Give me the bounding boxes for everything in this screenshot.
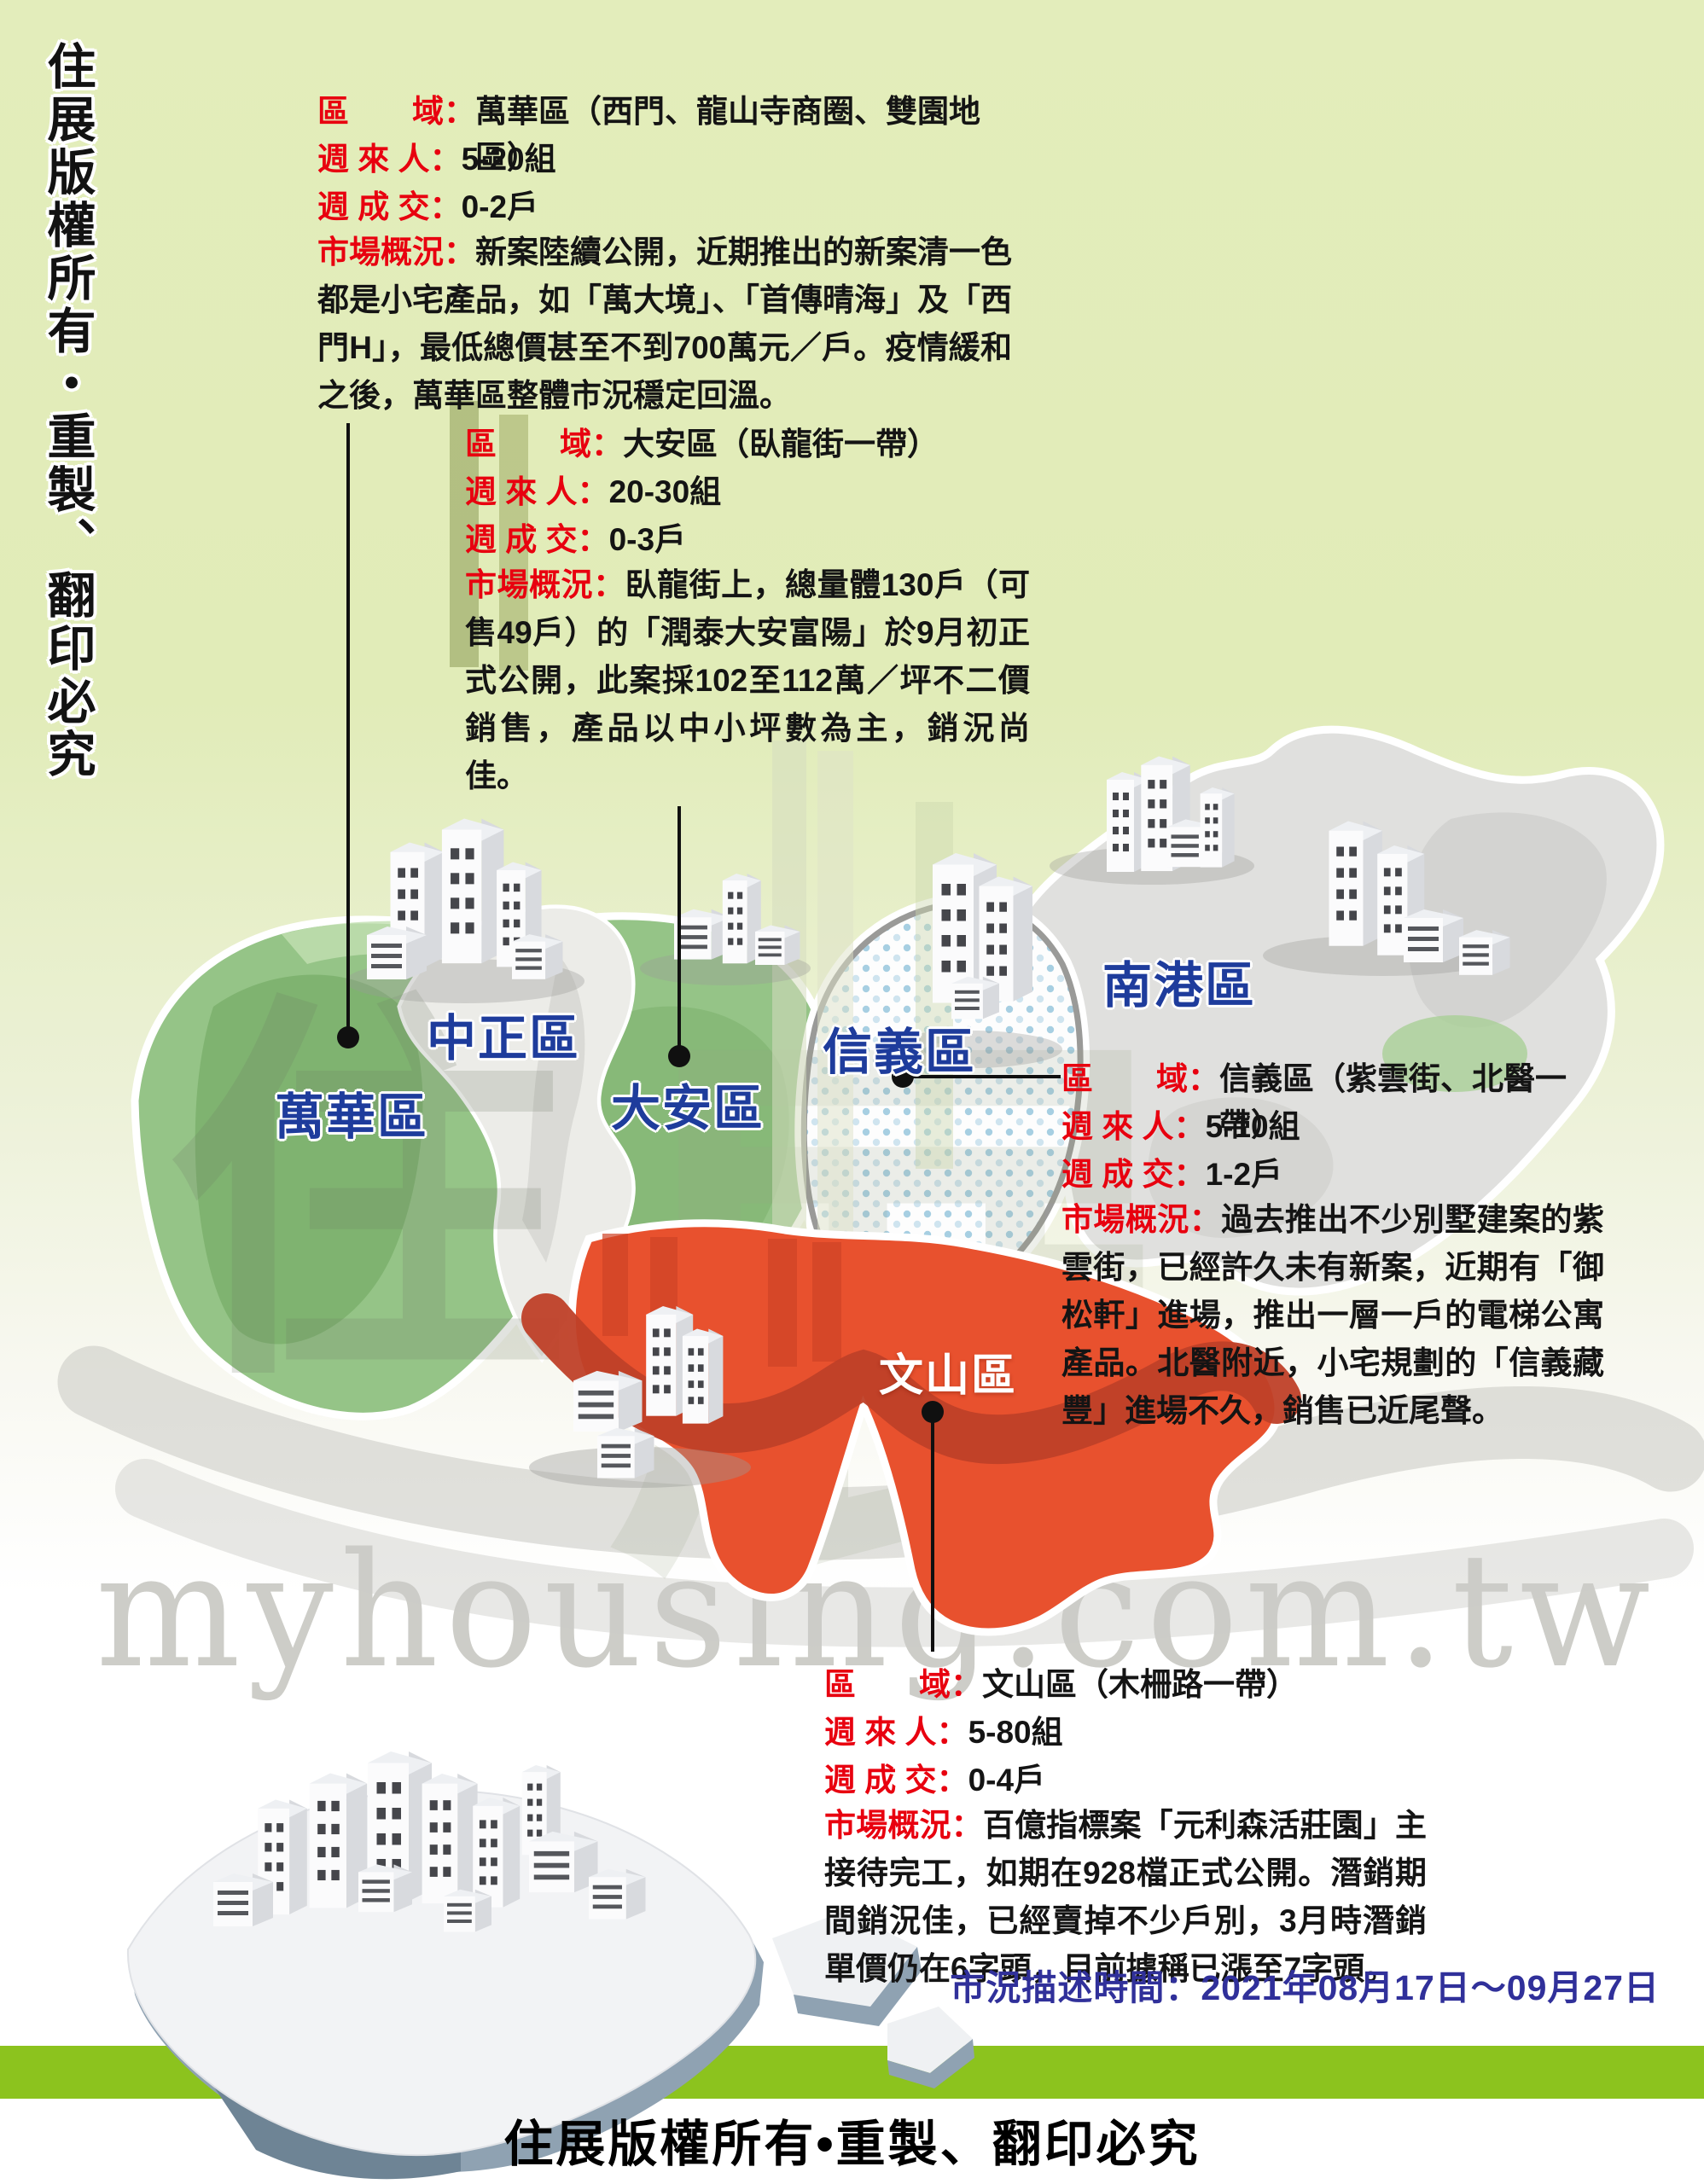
field-row: 區 域： 信義區（紫雲街、北醫一帶）	[1061, 1053, 1604, 1101]
market-paragraph: 市場概況：新案陸續公開，近期推出的新案清一色都是小宅產品，如「萬大境」、「首傳晴…	[317, 229, 1012, 420]
field-label: 區 域：	[1061, 1053, 1219, 1099]
callout-block-xinyi: 區 域： 信義區（紫雲街、北醫一帶） 週 來 人： 5-10組 週 成 交： 1…	[1061, 1053, 1604, 1435]
field-value: 1-2戶	[1206, 1148, 1282, 1194]
field-label: 週 來 人：	[317, 133, 462, 179]
market-label: 市場概況：	[824, 1808, 983, 1843]
field-value: 文山區（木柵路一帶）	[982, 1658, 1298, 1705]
field-label: 區 域：	[824, 1658, 982, 1705]
market-label: 市場概況：	[1061, 1202, 1221, 1237]
watermark-bar	[772, 741, 806, 1287]
field-value: 5-80組	[968, 1706, 1063, 1752]
district-label-zhongzheng: 中正區	[427, 998, 580, 1070]
field-row: 週 來 人： 5-80組	[824, 1706, 1427, 1754]
field-row: 區 域： 文山區（木柵路一帶）	[824, 1658, 1427, 1706]
market-label: 市場概況：	[465, 567, 625, 602]
field-row: 週 成 交： 0-2戶	[317, 181, 1012, 229]
field-row: 週 成 交： 1-2戶	[1061, 1148, 1604, 1196]
field-label: 週 來 人：	[824, 1706, 968, 1752]
field-label: 區 域：	[465, 418, 623, 464]
field-value: 20-30組	[609, 466, 722, 512]
callout-dot-wanhua	[337, 1026, 359, 1048]
field-row: 區 域： 大安區（臥龍街一帶）	[465, 418, 1030, 466]
field-value: 0-3戶	[609, 514, 686, 560]
field-label: 週 來 人：	[465, 466, 609, 512]
field-value: 0-2戶	[462, 181, 538, 227]
callout-block-wanhua: 區 域： 萬華區（西門、龍山寺商圈、雙園地區） 週 來 人： 5-20組 週 成…	[317, 85, 1012, 420]
field-label: 週 成 交：	[824, 1754, 968, 1800]
field-value: 0-4戶	[968, 1754, 1045, 1800]
field-label: 週 來 人：	[1061, 1101, 1206, 1147]
callout-dot-wenshan	[922, 1401, 944, 1423]
field-label: 區 域：	[317, 85, 475, 131]
side-copyright: 住展版權所有・重製、翻印必究	[43, 41, 91, 781]
infographic-page: { "page": { "side_copyright": "住展版權所有・重製…	[0, 0, 1704, 2184]
callout-block-daan: 區 域： 大安區（臥龍街一帶） 週 來 人： 20-30組 週 成 交： 0-3…	[465, 418, 1030, 800]
field-value: 5-10組	[1206, 1101, 1300, 1147]
field-row: 週 成 交： 0-3戶	[465, 514, 1030, 561]
market-paragraph: 市場概況：過去推出不少別墅建案的紫雲街，已經許久未有新案，近期有「御松軒」進場，…	[1061, 1196, 1604, 1435]
district-label-nangang: 南港區	[1102, 945, 1256, 1017]
market-paragraph: 市場概況：臥龍街上，總量體130戶（可售49戶）的「潤泰大安富陽」於9月初正式公…	[465, 561, 1030, 800]
watermark-bar	[817, 751, 853, 1263]
district-label-xinyi: 信義區	[823, 1012, 976, 1083]
red-watermark-bar	[768, 1239, 797, 1367]
callout-dot-daan	[668, 1045, 690, 1067]
field-row: 週 來 人： 20-30組	[465, 466, 1030, 514]
red-watermark-bar	[602, 1234, 628, 1336]
field-value: 大安區（臥龍街一帶）	[623, 418, 939, 464]
field-value: 5-20組	[462, 133, 556, 179]
field-row: 週 成 交： 0-4戶	[824, 1754, 1427, 1802]
market-label: 市場概況：	[317, 235, 475, 270]
field-label: 週 成 交：	[317, 181, 462, 227]
red-watermark-bar	[812, 1242, 841, 1362]
field-label: 週 成 交：	[465, 514, 609, 560]
district-label-wenshan: 文山區	[879, 1339, 1017, 1403]
callout-block-wenshan: 區 域： 文山區（木柵路一帶） 週 來 人： 5-80組 週 成 交： 0-4戶…	[824, 1658, 1427, 1993]
footer-copyright: 住展版權所有•重製、翻印必究	[0, 2104, 1704, 2175]
field-label: 週 成 交：	[1061, 1148, 1206, 1194]
survey-period: 市況描述時間：2021年08月17日～09月27日	[950, 1959, 1660, 2010]
district-label-wanhua: 萬華區	[275, 1077, 428, 1148]
district-label-daan: 大安區	[611, 1068, 765, 1140]
field-row: 區 域： 萬華區（西門、龍山寺商圈、雙園地區）	[317, 85, 1012, 133]
